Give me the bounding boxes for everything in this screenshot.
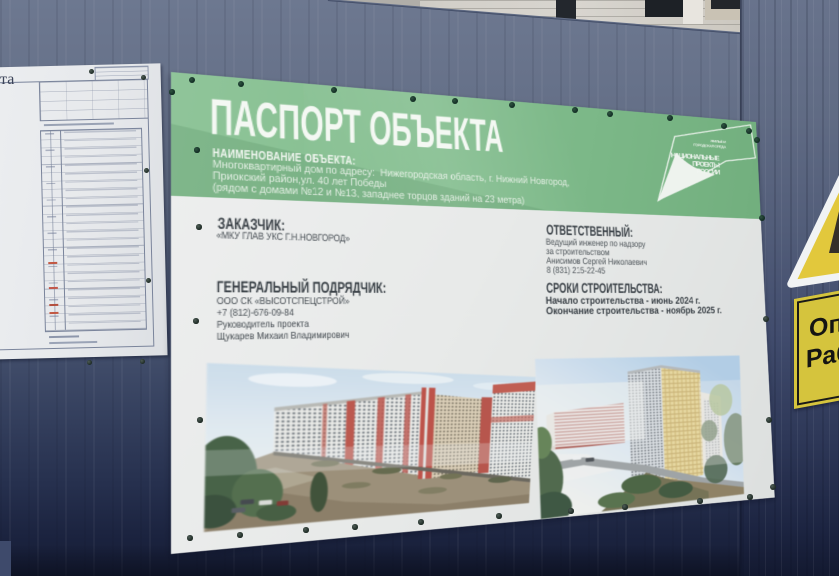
svg-text:РОССИИ: РОССИИ	[696, 168, 720, 176]
